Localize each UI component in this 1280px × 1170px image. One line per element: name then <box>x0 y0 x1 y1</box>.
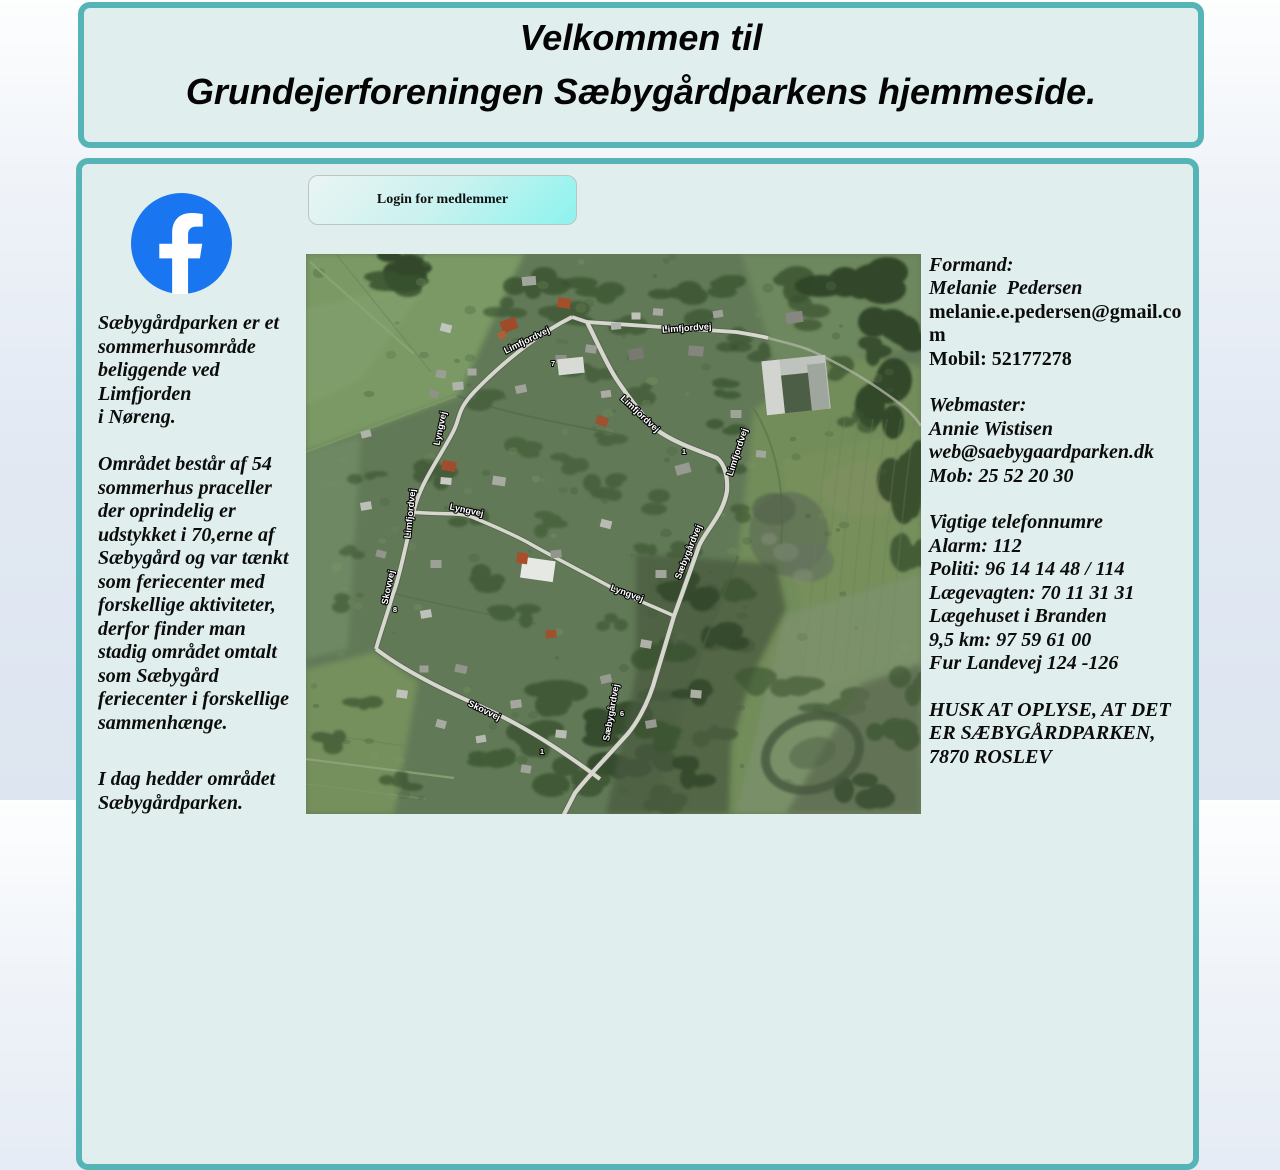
svg-text:7: 7 <box>551 359 555 368</box>
svg-text:6: 6 <box>620 709 624 718</box>
svg-text:8: 8 <box>393 605 397 614</box>
